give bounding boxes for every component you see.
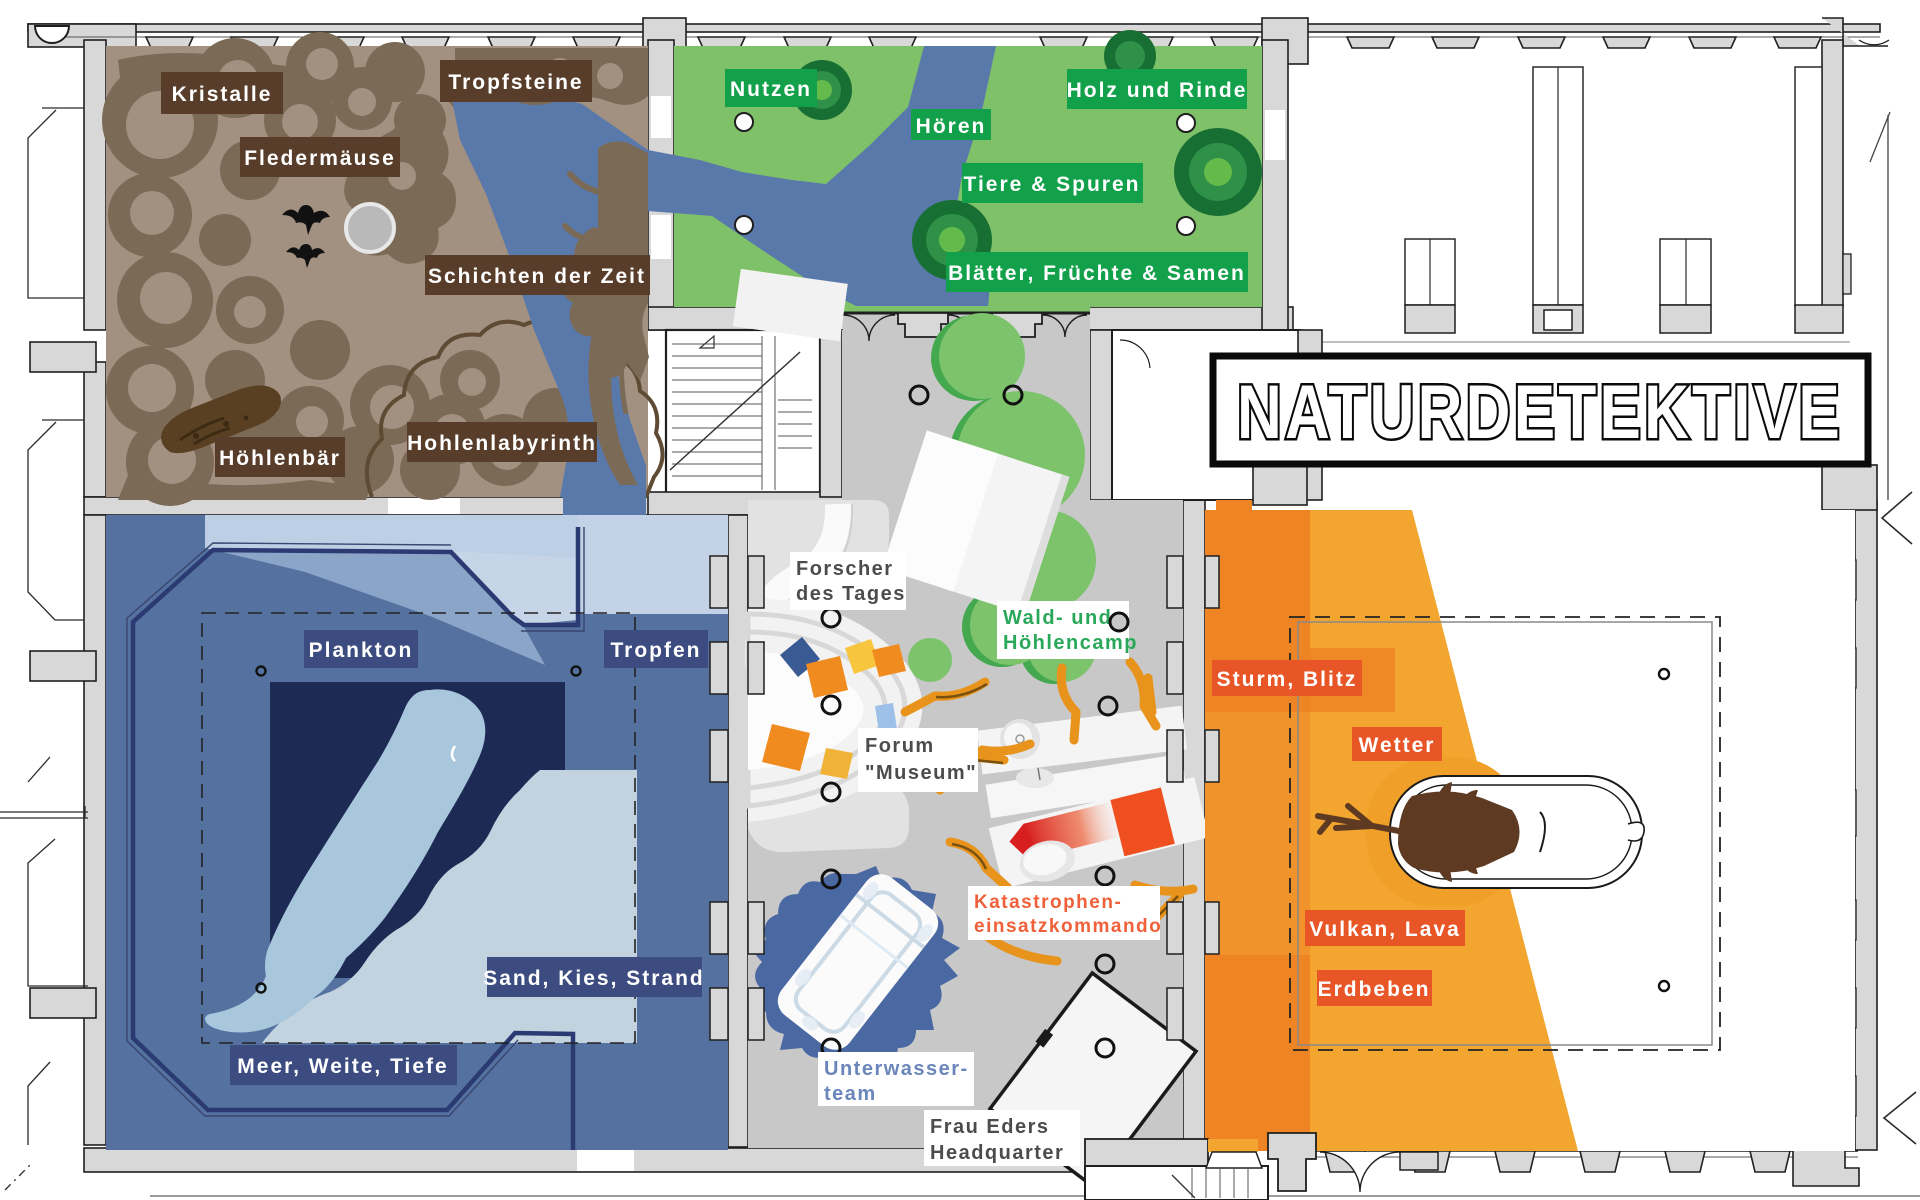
svg-text:Erdbeben: Erdbeben bbox=[1318, 978, 1431, 1001]
svg-text:Frau Eders: Frau Eders bbox=[930, 1116, 1049, 1138]
svg-text:Forum: Forum bbox=[865, 735, 935, 757]
svg-text:Hören: Hören bbox=[916, 115, 987, 138]
svg-text:Katastrophen-: Katastrophen- bbox=[974, 892, 1122, 913]
svg-text:Hohlenlabyrinth: Hohlenlabyrinth bbox=[407, 432, 597, 455]
svg-text:des Tages: des Tages bbox=[796, 583, 906, 605]
svg-text:Höhlenbär: Höhlenbär bbox=[219, 447, 341, 470]
svg-text:Holz und Rinde: Holz und Rinde bbox=[1067, 79, 1248, 102]
svg-text:Schichten der Zeit: Schichten der Zeit bbox=[428, 265, 646, 288]
svg-text:Tropfsteine: Tropfsteine bbox=[448, 71, 583, 94]
svg-text:Wetter: Wetter bbox=[1359, 734, 1436, 757]
svg-text:Wald- und: Wald- und bbox=[1003, 607, 1112, 629]
svg-text:Fledermäuse: Fledermäuse bbox=[244, 147, 396, 170]
svg-text:Tiere & Spuren: Tiere & Spuren bbox=[964, 173, 1141, 196]
svg-text:Vulkan, Lava: Vulkan, Lava bbox=[1309, 918, 1461, 941]
svg-text:Meer, Weite, Tiefe: Meer, Weite, Tiefe bbox=[237, 1055, 448, 1078]
svg-text:Höhlencamp: Höhlencamp bbox=[1003, 632, 1138, 654]
svg-text:Plankton: Plankton bbox=[309, 639, 414, 662]
svg-text:Tropfen: Tropfen bbox=[611, 639, 702, 662]
svg-text:team: team bbox=[824, 1083, 877, 1105]
svg-text:Nutzen: Nutzen bbox=[730, 78, 812, 101]
svg-text:Sand, Kies, Strand: Sand, Kies, Strand bbox=[483, 967, 705, 990]
svg-text:"Museum": "Museum" bbox=[865, 762, 977, 784]
svg-text:NATURDETEKTIVE: NATURDETEKTIVE bbox=[1237, 370, 1843, 455]
svg-text:Sturm, Blitz: Sturm, Blitz bbox=[1217, 668, 1358, 691]
svg-text:Forscher: Forscher bbox=[796, 558, 894, 580]
svg-text:Unterwasser-: Unterwasser- bbox=[824, 1058, 969, 1080]
svg-text:Kristalle: Kristalle bbox=[172, 83, 273, 106]
svg-text:einsatzkommando: einsatzkommando bbox=[974, 916, 1162, 937]
svg-text:Blätter, Früchte & Samen: Blätter, Früchte & Samen bbox=[948, 262, 1246, 285]
svg-text:Headquarter: Headquarter bbox=[930, 1142, 1064, 1164]
